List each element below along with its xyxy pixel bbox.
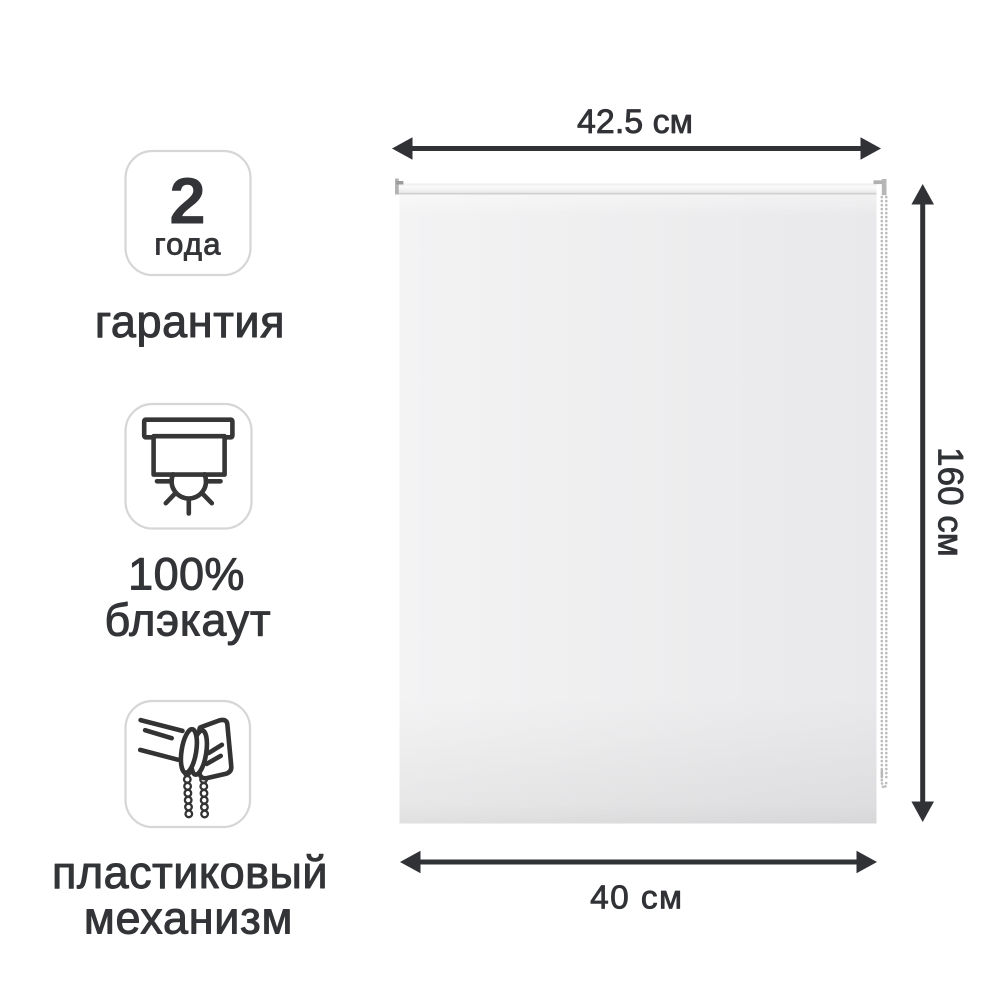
svg-text:гарантия: гарантия	[95, 296, 285, 347]
svg-text:100%: 100%	[128, 549, 245, 600]
svg-text:года: года	[154, 227, 221, 262]
svg-text:механизм: механизм	[84, 893, 293, 944]
svg-text:40 см: 40 см	[590, 880, 683, 917]
svg-text:пластиковый: пластиковый	[52, 847, 328, 898]
svg-text:42.5 см: 42.5 см	[577, 103, 693, 141]
svg-text:блэкаут: блэкаут	[105, 595, 272, 646]
svg-text:160 см: 160 см	[931, 447, 970, 557]
